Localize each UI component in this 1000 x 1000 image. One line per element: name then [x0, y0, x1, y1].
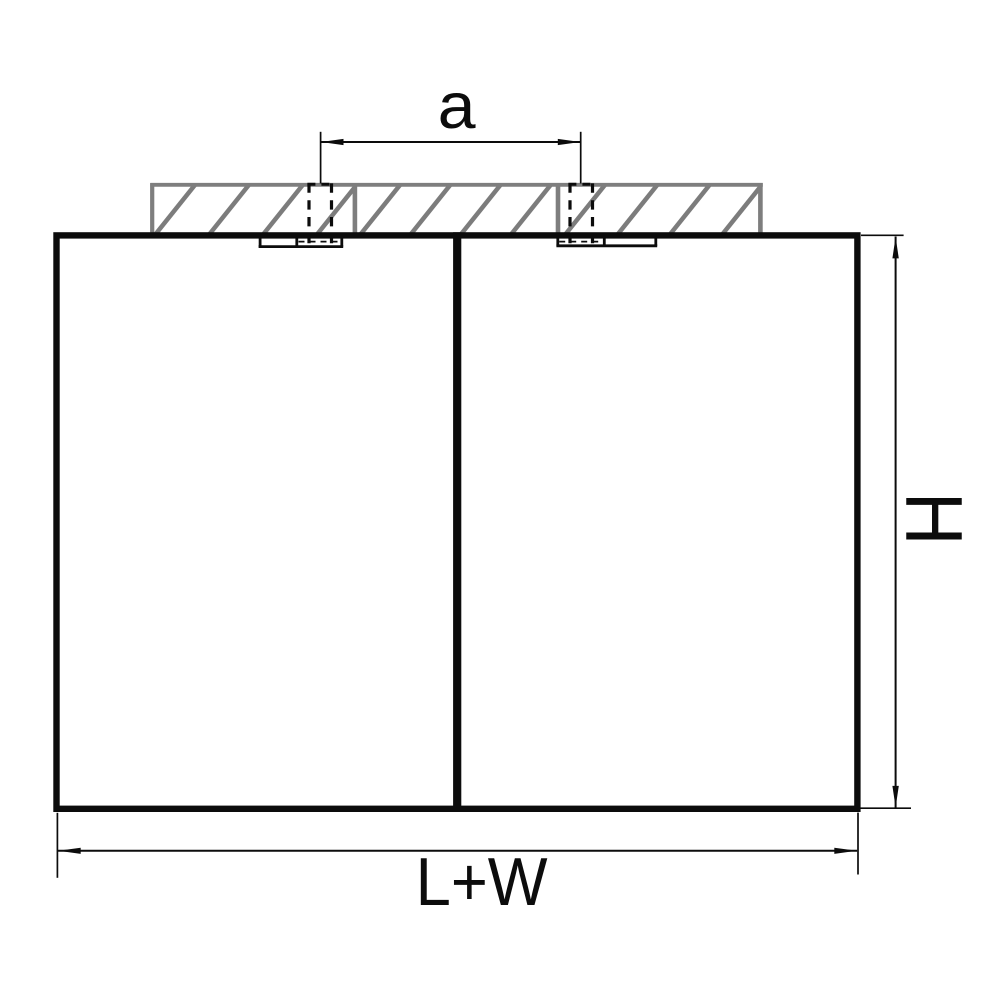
svg-text:H: H	[888, 492, 978, 546]
svg-text:L+W: L+W	[416, 844, 548, 920]
svg-text:a: a	[438, 70, 477, 142]
